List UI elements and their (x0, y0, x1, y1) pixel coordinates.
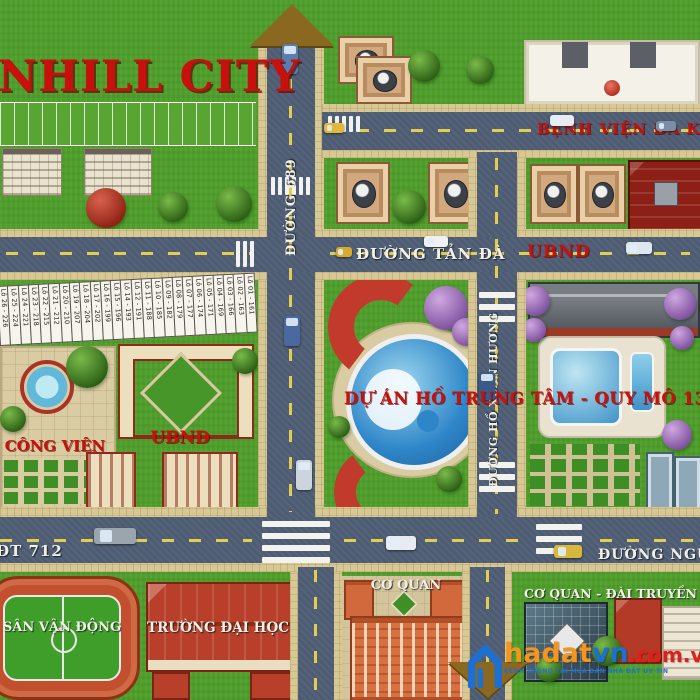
ubnd-wing-building (86, 452, 136, 512)
tree-icon (232, 348, 258, 374)
crosswalk (262, 521, 330, 563)
car-icon (626, 242, 652, 254)
watermark-brand-hadat: hadat (504, 638, 592, 669)
blue-roof-building (674, 456, 700, 512)
nhadatvn-house-logo-icon (466, 642, 504, 692)
office-label: CƠ QUAN (352, 578, 460, 593)
car-icon (336, 247, 352, 257)
tree-icon (436, 466, 462, 492)
road-label-dt712: ĐT 712 (0, 542, 63, 560)
watermark-brand-domain: .com.vn (629, 643, 700, 667)
tree-icon (466, 56, 494, 84)
hospital-courtyard (630, 42, 656, 68)
road-label-tanda: ĐƯỜNG TẢN ĐÀ (356, 245, 505, 263)
lane-line (344, 539, 532, 542)
apartment-building (84, 148, 152, 196)
road-label-689: ĐƯỜNG 689 (284, 158, 299, 256)
building-core (654, 182, 678, 206)
lane-line (6, 252, 252, 255)
watermark-tagline: KÊNH THÔNG TIN MUA BÁN NHÀ ĐẤT UY TÍN (504, 669, 700, 675)
pavilion-building (530, 164, 578, 224)
soccer-field (3, 595, 121, 681)
tree-icon (392, 190, 426, 224)
tree-icon (216, 186, 252, 222)
bus-icon (284, 316, 300, 346)
lot-strip: Lô 26 - 226Lô 25 - 224Lô 24 - 221Lô 23 -… (0, 273, 258, 346)
tv-station-label: CƠ QUAN - ĐÀI TRUYỀN HÌ (524, 586, 700, 601)
red-roof-building (628, 160, 700, 232)
project-area-label: DỰ ÁN HỒ TRUNG TÂM - QUY MÔ 13.7HA (344, 389, 700, 408)
hospital-dome-icon (604, 80, 620, 96)
tree-icon (0, 406, 26, 432)
purple-tree-icon (664, 288, 696, 320)
project-title: NHILL CITY (0, 52, 301, 102)
master-plan-map: NHILL CITY Lô 26 - 226Lô 25 - 224Lô 24 -… (0, 0, 700, 700)
hospital-courtyard (562, 42, 588, 68)
ubnd-label: UBND (138, 428, 222, 448)
north-entrance-arrow-icon (250, 4, 334, 46)
university-outbuilding (152, 672, 190, 700)
lane-line (289, 52, 292, 512)
road-label-ubnd-sign: UBND (527, 242, 590, 262)
red-tree-icon (86, 188, 126, 228)
bus-icon (94, 528, 136, 544)
hospital-building (524, 40, 700, 106)
tree-icon (66, 346, 108, 388)
watermark-brand-vn: vn (592, 638, 629, 669)
tree-icon (408, 50, 440, 82)
pavilion-building (336, 162, 390, 224)
bus-icon (296, 460, 312, 490)
stadium-label: SÂN VẬN ĐỘNG (0, 620, 132, 635)
pavilion-building (578, 164, 626, 224)
stadium-track (0, 576, 140, 700)
car-icon (424, 236, 448, 247)
university-label: TRƯỜNG ĐẠI HỌC (138, 620, 298, 636)
hedge-grid (530, 444, 640, 506)
pavilion-building (356, 56, 412, 104)
car-icon (550, 115, 574, 126)
car-icon (656, 121, 676, 131)
lane-line (600, 539, 700, 542)
crosswalk (236, 241, 254, 267)
lane-line (314, 570, 317, 700)
road-label-nguyen: ĐƯỜNG NGUY (598, 547, 700, 563)
park-label: CÔNG VIÊN (0, 437, 110, 455)
car-icon (324, 123, 344, 133)
swimming-pool (550, 348, 622, 426)
car-icon (386, 536, 416, 550)
purple-tree-icon (662, 420, 692, 450)
apartment-building (2, 148, 62, 196)
watermark: hadatvn.com.vn KÊNH THÔNG TIN MUA BÁN NH… (466, 640, 700, 698)
tree-icon (328, 416, 350, 438)
tree-icon (158, 192, 188, 222)
ubnd-wing-building (162, 452, 238, 512)
purple-tree-icon (670, 326, 694, 350)
lot-label: Lô 01 - 161 (243, 273, 257, 334)
blue-roof-building (646, 452, 674, 512)
university-outbuilding (250, 672, 294, 700)
lot-grid-field (0, 102, 256, 146)
lake-island-dot (417, 410, 440, 433)
car-icon (554, 545, 582, 558)
